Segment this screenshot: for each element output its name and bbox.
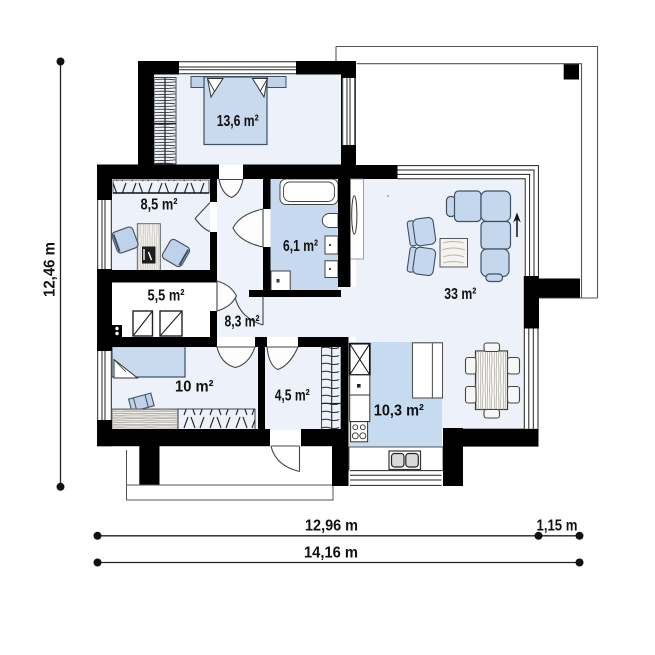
svg-text:8,5 m²: 8,5 m²: [141, 197, 178, 214]
svg-text:10,3 m²: 10,3 m²: [374, 403, 424, 420]
svg-text:4,5 m²: 4,5 m²: [275, 388, 310, 405]
svg-text:33 m²: 33 m²: [444, 286, 476, 303]
svg-text:10 m²: 10 m²: [175, 378, 214, 395]
svg-text:14,16 m: 14,16 m: [304, 545, 358, 562]
svg-text:6,1 m²: 6,1 m²: [283, 238, 318, 255]
svg-text:12,96 m: 12,96 m: [305, 518, 358, 535]
svg-text:1,15 m: 1,15 m: [537, 518, 578, 535]
svg-text:13,6 m²: 13,6 m²: [217, 113, 259, 130]
svg-text:8,3 m²: 8,3 m²: [225, 314, 260, 331]
svg-text:5,5 m²: 5,5 m²: [148, 288, 185, 305]
svg-text:12,46 m: 12,46 m: [42, 242, 59, 297]
